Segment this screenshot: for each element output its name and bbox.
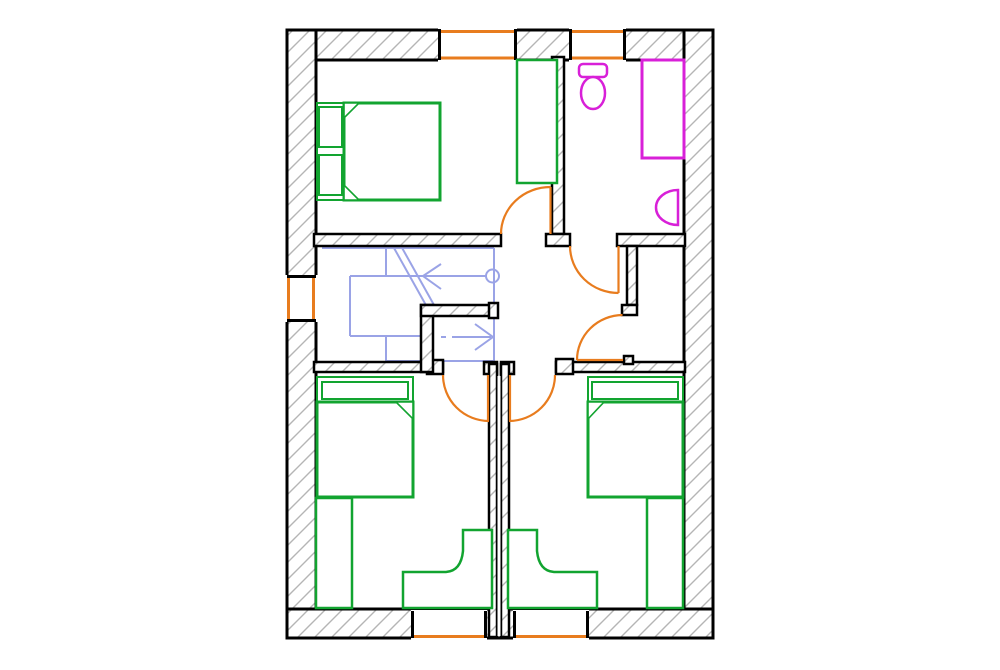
wall-hall-south-east-jamb [556,359,573,374]
stair-start-circle [486,270,499,283]
wall-stair-corner-horizontal [421,305,492,316]
bed-right-frame [588,377,683,497]
floor-plan-elements [285,28,713,640]
wall-band-right [684,30,713,638]
door-bedroom2-arc [443,375,489,421]
door-bathroom-arc [570,246,619,293]
wardrobe-left [316,498,352,608]
wall-hall-south-east [556,362,685,372]
stair-break-line-1 [394,248,427,307]
sink [656,190,678,225]
door-bedroom1-arc [501,187,551,234]
bed-master-frame [317,103,440,200]
floor-plan-page [0,0,1000,670]
wardrobe-right [647,498,683,608]
desk-right [508,530,597,608]
door-closet-arc [577,315,623,360]
wall-closet-west-foot [622,305,637,315]
floor-plan-canvas [0,0,1000,670]
wall-bathroom-south [617,234,685,246]
wall-closet-west [627,246,637,305]
wall-closet-door-jamb [624,356,633,364]
toilet-tank [579,64,607,77]
wardrobe-master [517,60,557,183]
wall-band-left [287,30,316,638]
desk-left [403,530,492,608]
toilet-bowl [581,77,605,109]
wall-bedroom1-south [314,234,501,246]
wall-stair-corner-jamb [489,303,498,318]
door-bedroom3-arc [509,375,555,421]
bathtub [642,60,684,158]
bed-left-frame [317,377,413,497]
wall-divider-foot [546,234,570,246]
wall-party-gap [498,376,501,636]
